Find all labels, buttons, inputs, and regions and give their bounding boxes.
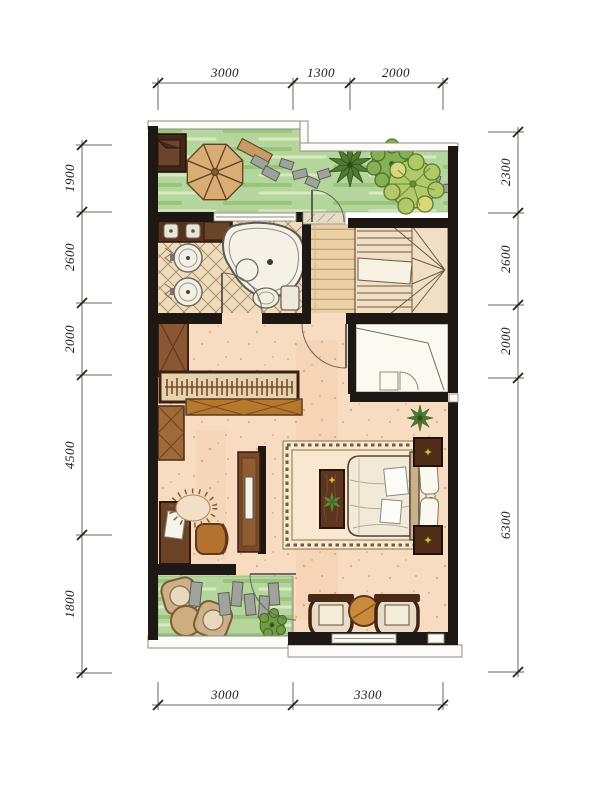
wardrobe-with-hangers	[160, 372, 298, 402]
low-dresser	[186, 399, 302, 415]
parapet-top-right	[300, 143, 458, 151]
dim-label-top: 3000	[195, 64, 255, 82]
parapet-bottom	[148, 636, 294, 648]
bed-cushion	[384, 467, 409, 496]
floor-plan-drawing	[0, 0, 600, 800]
bath-stool	[236, 259, 258, 281]
wall-bathroom-top	[150, 212, 214, 222]
wall-right-lower	[448, 402, 458, 645]
dim-label-top: 1300	[291, 64, 351, 82]
dim-label-left: 2600	[61, 227, 79, 287]
fixture-dot	[191, 229, 195, 233]
dim-label-left: 1800	[61, 574, 79, 634]
planter-box-inner	[158, 140, 180, 166]
dim-label-right: 2300	[497, 142, 515, 202]
dim-label-right: 2000	[497, 311, 515, 371]
hall-wood-floor	[306, 224, 355, 313]
dim-label-right: 6300	[497, 495, 515, 555]
dim-label-bottom: 3000	[195, 686, 255, 704]
wall-bathroom-right	[302, 212, 311, 324]
nightstand	[414, 526, 442, 554]
side-cabinet	[158, 406, 184, 460]
armchair	[374, 594, 420, 638]
window-sill-band	[288, 645, 462, 657]
dim-label-left: 4500	[61, 425, 79, 485]
wall-desk-nook	[150, 564, 236, 575]
wall-understair-bottom	[350, 392, 448, 402]
wall-hall-top	[348, 218, 448, 228]
television	[245, 477, 253, 519]
fixture-dot	[169, 229, 173, 233]
desk-chair	[196, 524, 227, 554]
dim-label-right: 2600	[497, 229, 515, 289]
dim-label-left: 1900	[61, 148, 79, 208]
window-right-wall	[449, 394, 458, 402]
understair-storage-floor	[356, 324, 448, 392]
nightstand	[414, 438, 442, 466]
armchair	[308, 594, 354, 638]
window-bedroom-south-2	[428, 634, 444, 643]
bathtub-drain	[267, 259, 273, 265]
floor-plan-canvas: 3000 1300 2000 3000 3300 1900 2600 2000 …	[0, 0, 600, 800]
dim-label-top: 2000	[366, 64, 426, 82]
bed-cushion	[380, 499, 402, 524]
wall-mid	[346, 313, 448, 324]
wall-understair-left	[348, 324, 356, 394]
parapet-top-left	[148, 121, 308, 129]
foot-bench	[320, 470, 344, 528]
stair-landing	[358, 258, 412, 284]
wall-right-upper	[448, 146, 458, 393]
wall-mid	[150, 313, 222, 324]
patio-umbrella	[187, 144, 242, 199]
dim-label-left: 2000	[61, 309, 79, 369]
wall-left	[148, 126, 158, 640]
tv-cabinet	[238, 446, 266, 554]
dim-label-bottom: 3300	[338, 686, 398, 704]
tall-cabinet	[158, 318, 188, 376]
potted-plant	[407, 405, 433, 431]
wall-mid	[262, 313, 302, 324]
